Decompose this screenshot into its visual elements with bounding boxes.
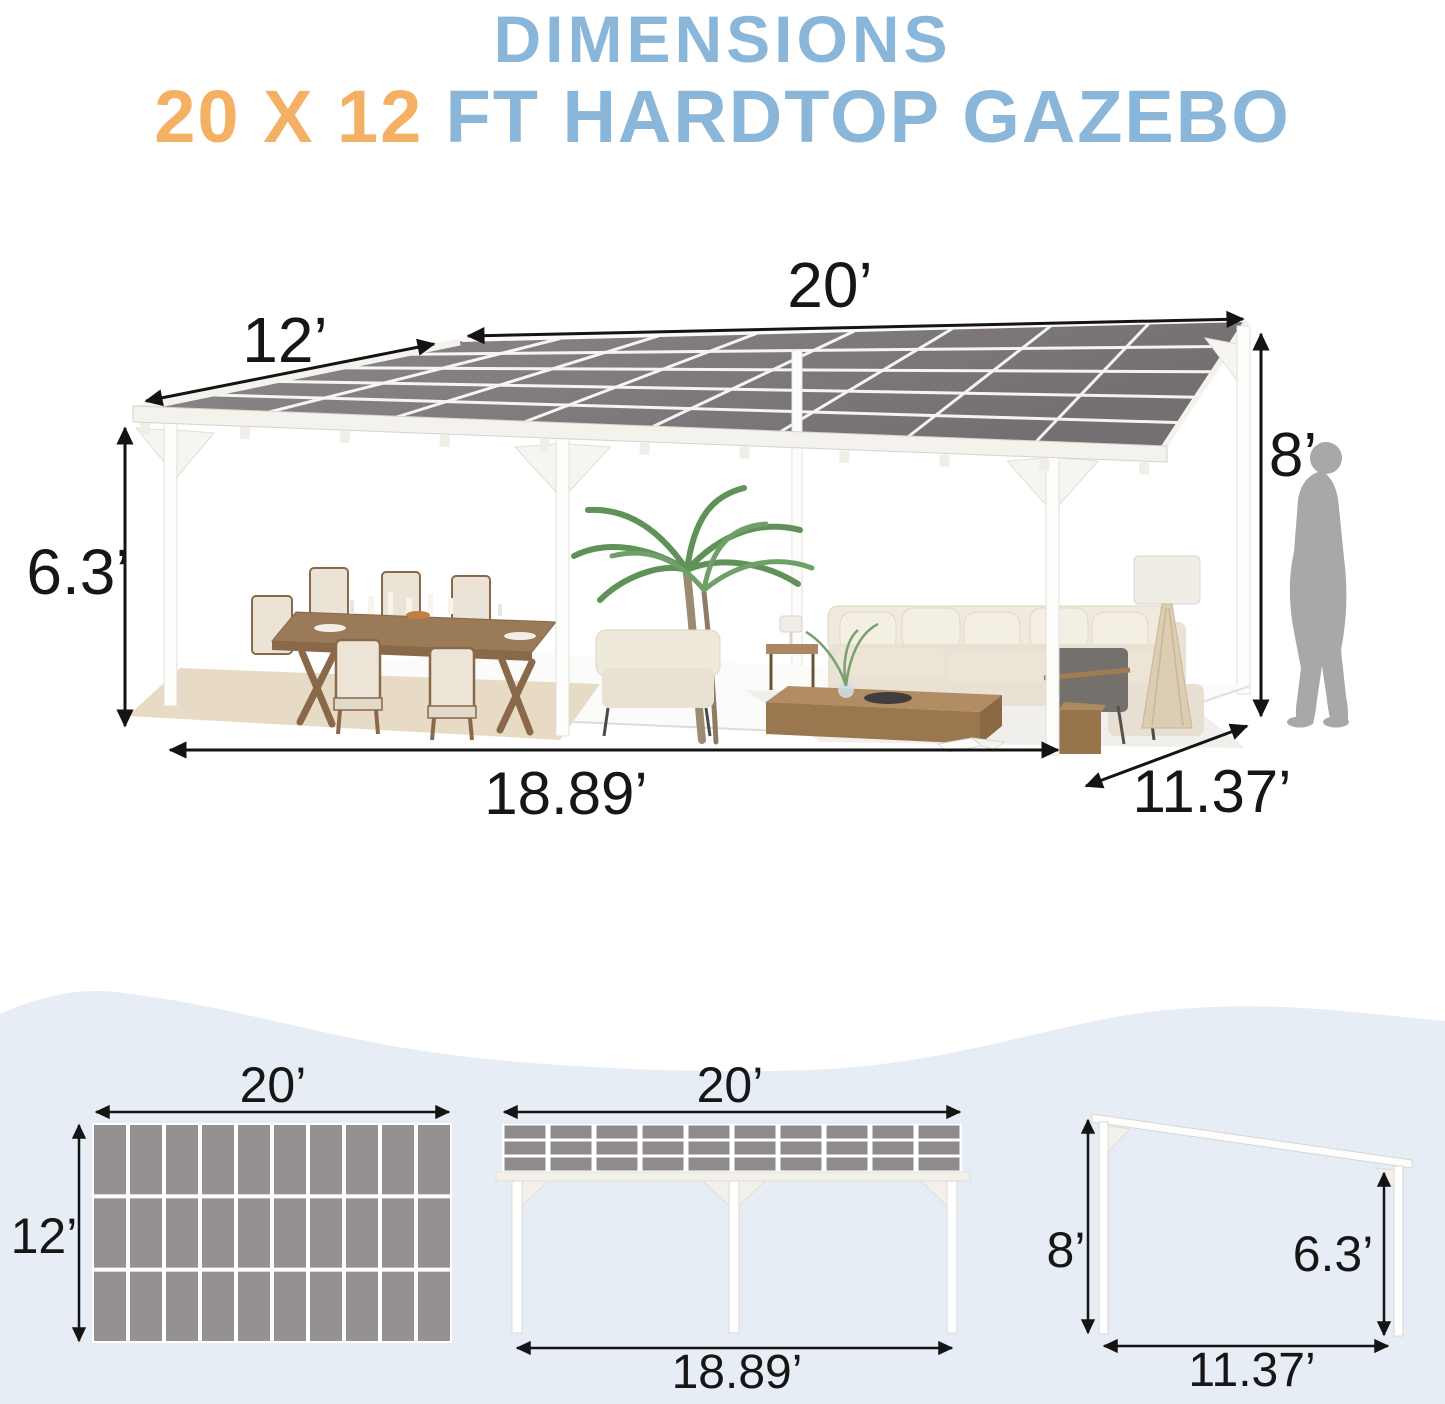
top-view-depth-label: 12’: [11, 1208, 78, 1264]
gazebo-dimensions-scene: 20’ 12’ 8’ 6.3’ 18.89’ 11.37’ 20’ 12’: [0, 0, 1445, 1404]
side-view-front-height-label: 6.3’: [1293, 1226, 1374, 1282]
front-left-post: [136, 420, 214, 706]
front-view-base-label: 18.89’: [672, 1346, 803, 1399]
top-view-width-label: 20’: [240, 1057, 307, 1113]
side-view-front-post: [1394, 1166, 1403, 1336]
main-base-width-label: 18.89’: [484, 760, 647, 827]
front-view-panel-strip: [502, 1124, 962, 1172]
subtitle-size-text: 20 X 12: [154, 75, 423, 158]
page-title: DIMENSIONS: [0, 6, 1445, 72]
side-view-back-post: [1099, 1122, 1108, 1334]
front-view-beam: [496, 1172, 970, 1181]
wood-stool: [1059, 702, 1106, 754]
page-subtitle: 20 X 12FT HARDTOP GAZEBO: [0, 80, 1445, 154]
gazebo-3d-render: 20’ 12’ 8’ 6.3’ 18.89’ 11.37’: [26, 249, 1349, 827]
dimensions-infographic-page: DIMENSIONS 20 X 12FT HARDTOP GAZEBO: [0, 0, 1445, 1404]
main-width-label: 20’: [787, 249, 872, 321]
top-view-panel-grid: [92, 1123, 452, 1343]
front-view-width-label: 20’: [697, 1057, 764, 1113]
title-block: DIMENSIONS 20 X 12FT HARDTOP GAZEBO: [0, 0, 1445, 154]
main-front-height-label: 6.3’: [26, 536, 129, 608]
main-back-height-label: 8’: [1269, 421, 1317, 490]
main-base-depth-label: 11.37’: [1132, 758, 1291, 825]
subtitle-product-text: FT HARDTOP GAZEBO: [446, 75, 1291, 158]
side-view-back-height-label: 8’: [1047, 1222, 1086, 1278]
side-view-base-label: 11.37’: [1188, 1344, 1315, 1397]
main-depth-label: 12’: [242, 304, 327, 376]
